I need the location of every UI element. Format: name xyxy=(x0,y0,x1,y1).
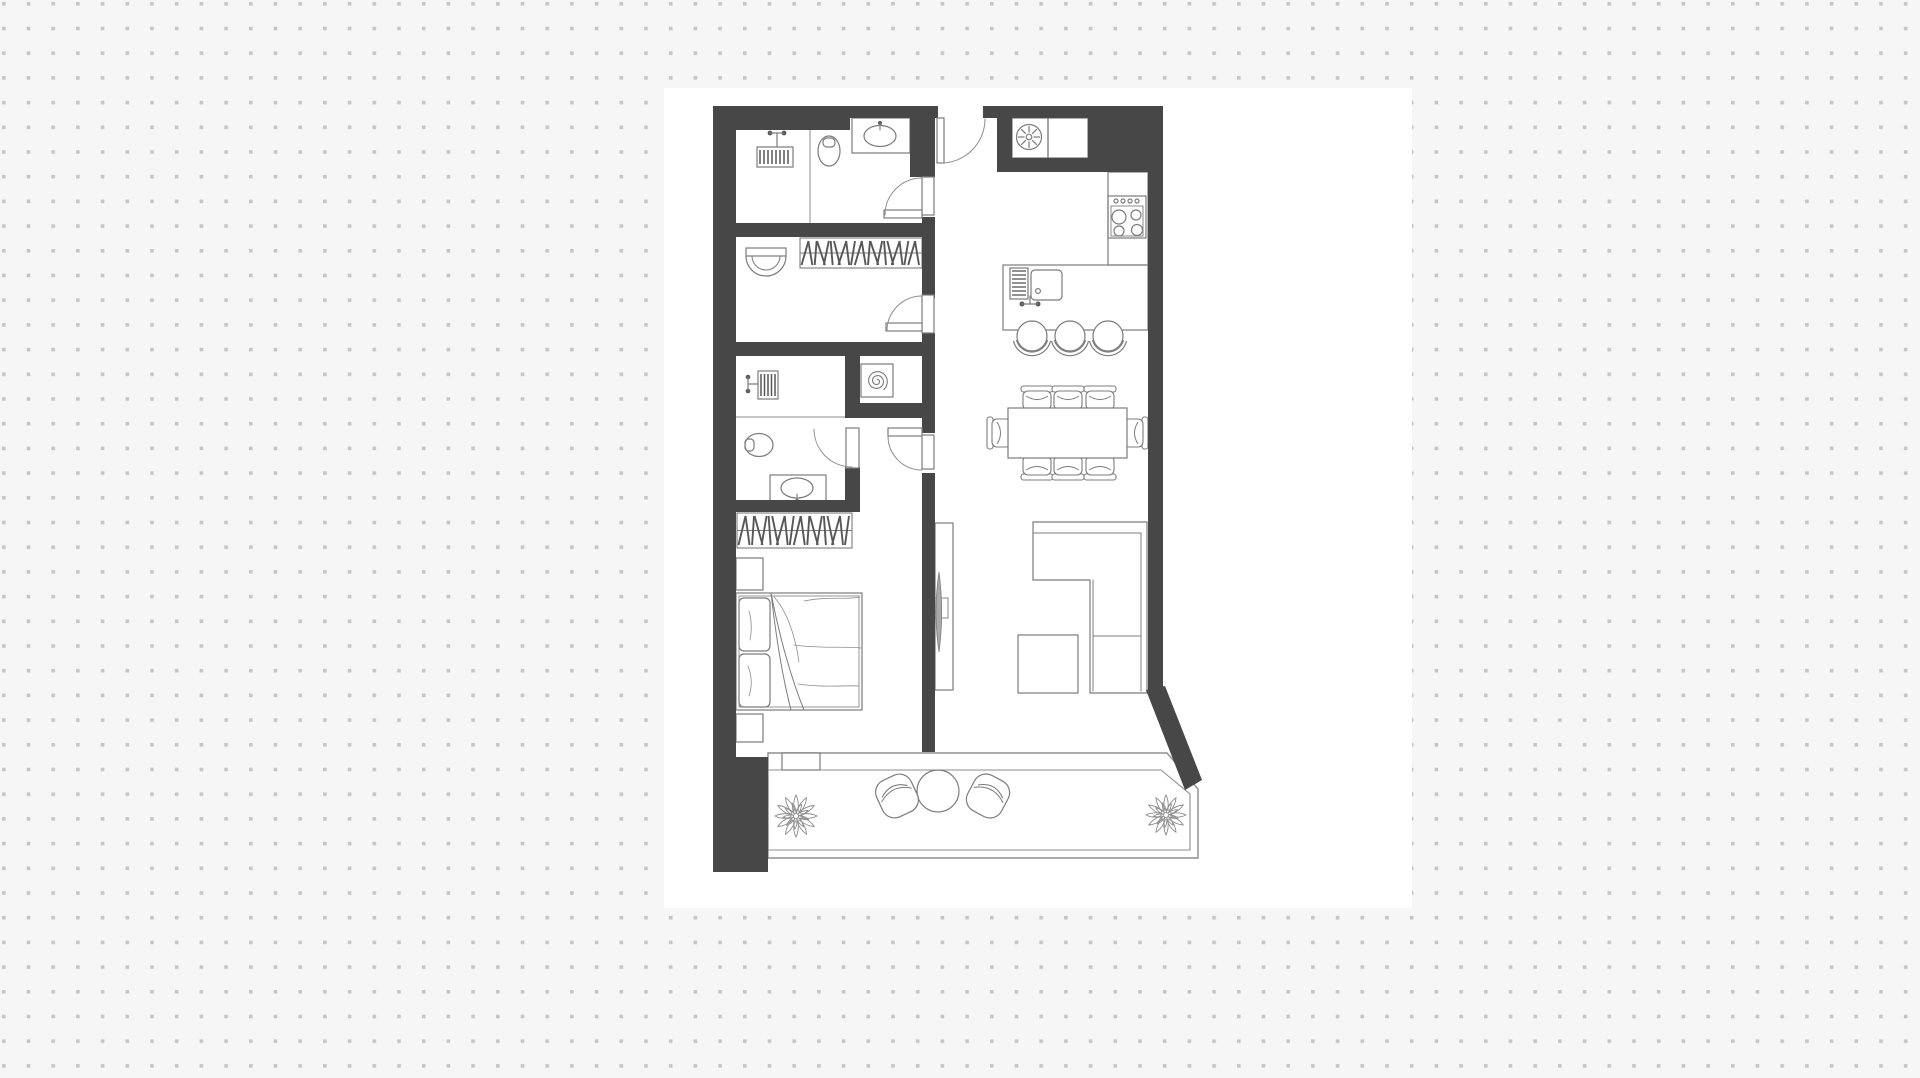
wall xyxy=(713,342,935,356)
door-leaf xyxy=(888,428,922,436)
wall xyxy=(1012,106,1088,118)
dining-chair xyxy=(1084,386,1116,410)
door-leaf xyxy=(846,428,859,468)
wall xyxy=(713,223,935,237)
wall xyxy=(922,333,935,433)
door-jamb xyxy=(922,177,934,215)
wall xyxy=(997,118,1012,172)
dining-chair xyxy=(1021,386,1053,410)
dish-rack-bars xyxy=(1012,271,1026,295)
balcony-door xyxy=(782,753,820,770)
wall xyxy=(1088,106,1163,172)
dining-table xyxy=(1008,408,1127,458)
door-leaf xyxy=(886,323,922,331)
pillow xyxy=(739,654,770,707)
dining-chair xyxy=(1084,456,1116,480)
wall-basin-top xyxy=(746,248,786,256)
pillow xyxy=(739,598,770,651)
dining-chair xyxy=(1021,456,1053,480)
wall xyxy=(845,467,860,512)
wall xyxy=(1148,172,1163,692)
wall xyxy=(1012,158,1088,172)
wall xyxy=(713,757,768,872)
wall xyxy=(922,473,935,752)
wall xyxy=(983,106,1012,118)
door-leaf xyxy=(884,210,922,218)
door-jamb xyxy=(937,118,944,163)
wall xyxy=(713,500,845,512)
door-jamb xyxy=(922,295,934,333)
wall xyxy=(850,106,938,118)
wall xyxy=(845,356,860,418)
dining-chair xyxy=(1052,456,1084,480)
floor-plan-drawing xyxy=(0,0,1920,1078)
page-background xyxy=(0,0,1920,1078)
wall xyxy=(910,118,935,177)
dining-chair xyxy=(1052,386,1084,410)
wall xyxy=(713,106,736,757)
toilet2-bowl xyxy=(745,434,773,457)
door-jamb xyxy=(922,435,934,469)
toilet-bowl xyxy=(818,136,840,166)
wall xyxy=(922,217,935,298)
